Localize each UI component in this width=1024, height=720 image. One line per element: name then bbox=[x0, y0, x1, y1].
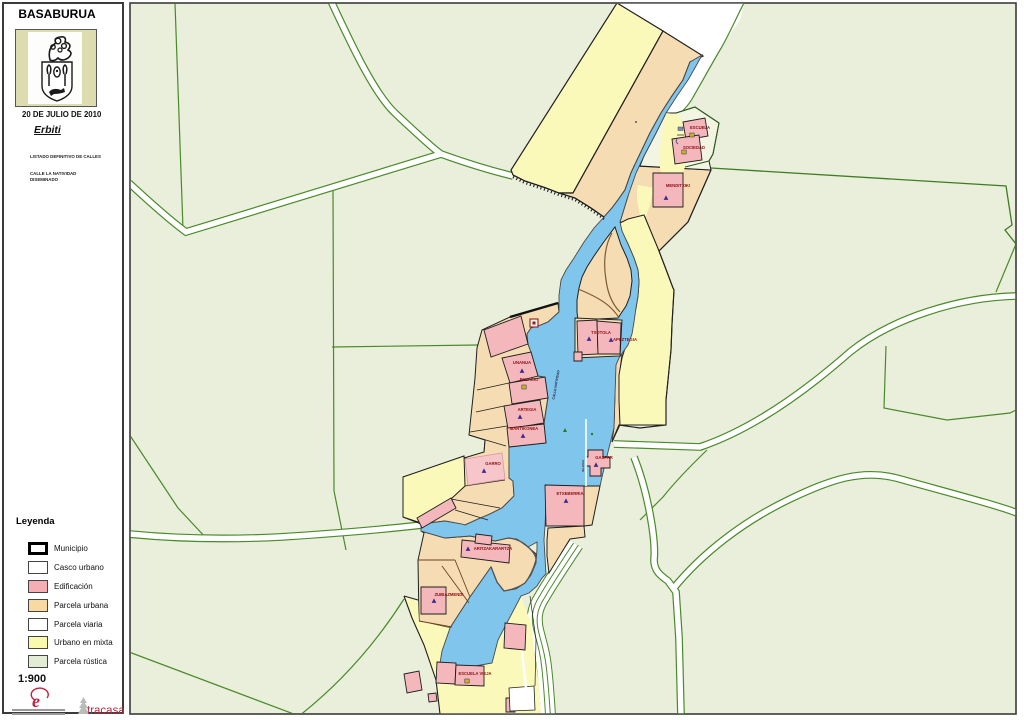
svg-text:MARTIKONEA: MARTIKONEA bbox=[510, 426, 538, 431]
svg-text:GARRO: GARRO bbox=[485, 461, 501, 466]
svg-text:ESCUELA VIEJA: ESCUELA VIEJA bbox=[458, 671, 491, 676]
svg-text:UNANUA: UNANUA bbox=[513, 360, 531, 365]
svg-text:TXOTOLA: TXOTOLA bbox=[591, 330, 611, 335]
svg-text:MENDITXIKI: MENDITXIKI bbox=[666, 183, 690, 188]
svg-text:SOCIEDAD: SOCIEDAD bbox=[683, 145, 705, 150]
svg-text:ARTEGIA: ARTEGIA bbox=[518, 407, 537, 412]
svg-text:ESCUELA: ESCUELA bbox=[690, 125, 710, 130]
svg-text:ARITZAKARARTZA: ARITZAKARARTZA bbox=[474, 546, 513, 551]
svg-text:tracasa: tracasa bbox=[87, 705, 124, 716]
svg-text:e: e bbox=[32, 691, 40, 711]
svg-text:PALACIO: PALACIO bbox=[520, 377, 539, 382]
svg-text:APEZTEGIA: APEZTEGIA bbox=[613, 337, 637, 342]
svg-text:ETXEBERRIA: ETXEBERRIA bbox=[557, 491, 584, 496]
svg-text:IGLESIA: IGLESIA bbox=[581, 459, 585, 472]
svg-text:ZUBIAZMENDI: ZUBIAZMENDI bbox=[435, 592, 464, 597]
svg-text:GASPAR: GASPAR bbox=[595, 455, 613, 460]
